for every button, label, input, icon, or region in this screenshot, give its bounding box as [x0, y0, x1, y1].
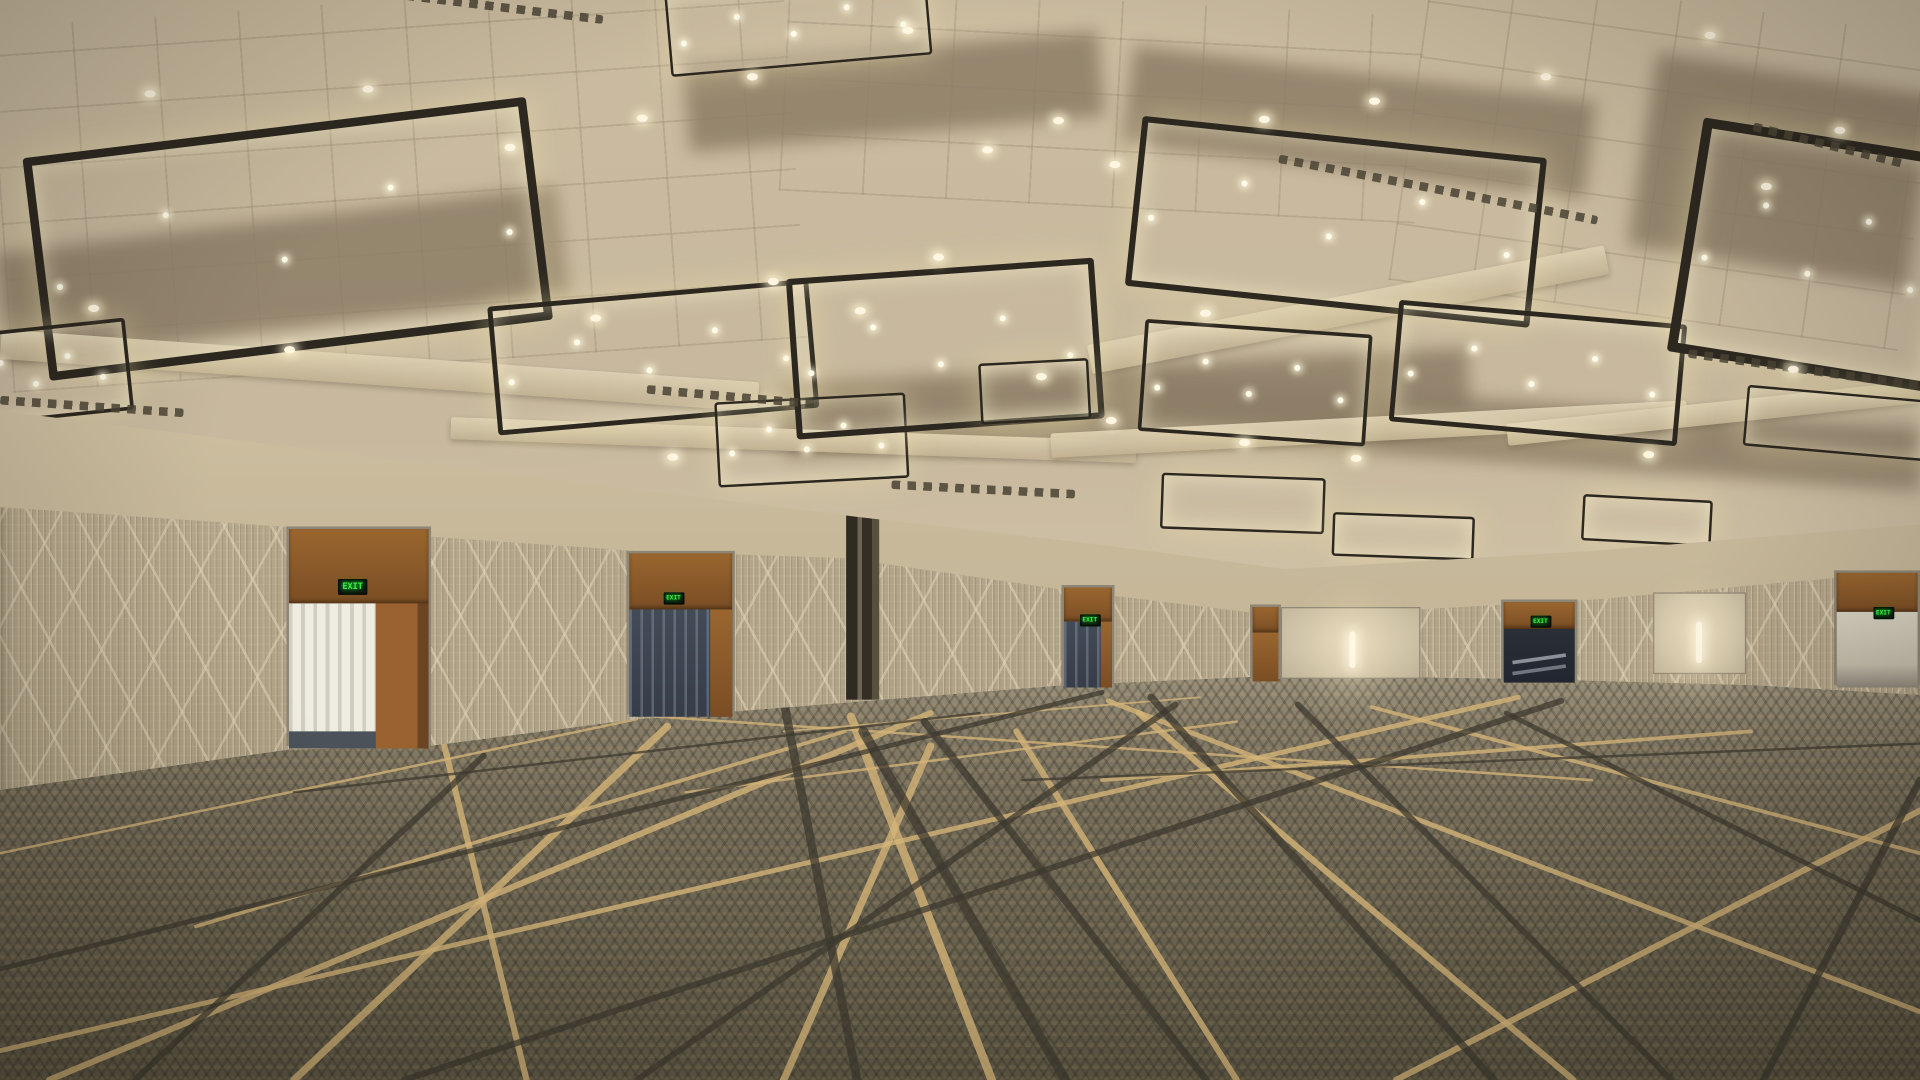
downlight: [504, 144, 515, 151]
fixture-bulb: [870, 324, 877, 331]
fixture-bulb: [1503, 252, 1510, 259]
fixture-bulb: [999, 315, 1006, 322]
light-fixture: [1389, 300, 1688, 447]
open-door-dim: [1837, 612, 1918, 688]
fixture-bulb: [281, 256, 288, 263]
escalator-handrail: [1512, 664, 1566, 675]
fixture-bulb: [1804, 271, 1811, 278]
fixture-bulb: [1202, 358, 1209, 365]
fixture-bulb: [56, 283, 63, 290]
fixture-bulb: [734, 14, 741, 21]
exit-sign-label: EXIT: [1876, 610, 1891, 616]
downlight: [362, 85, 373, 92]
exit-sign-label: EXIT: [1533, 619, 1548, 625]
downlight: [1200, 310, 1211, 317]
door-header: [1253, 607, 1279, 633]
downlight: [1109, 161, 1120, 168]
downlight: [1704, 32, 1715, 39]
downlight: [1036, 373, 1047, 380]
doorway: [627, 551, 735, 714]
fixture-bulb: [711, 328, 718, 335]
vent-strip: [891, 480, 1075, 498]
fixture-bulb: [387, 184, 394, 191]
fixture-bulb: [808, 370, 815, 377]
escalator-handrail: [1512, 653, 1566, 664]
airwall-column: [846, 500, 879, 700]
door-threshold: [289, 731, 376, 748]
fixture-bulb: [64, 353, 71, 360]
doorway: [1062, 585, 1115, 685]
light-fixture: [1160, 473, 1326, 535]
wall-sconce: [1696, 622, 1702, 663]
escalator-opening: [1504, 629, 1575, 683]
exit-sign: EXIT: [338, 578, 367, 594]
fixture-bulb: [33, 380, 40, 387]
downlight: [747, 73, 758, 80]
exit-sign: EXIT: [1873, 607, 1894, 619]
doorway: [1834, 570, 1920, 685]
wall-sconce: [1349, 631, 1355, 668]
fixture-bulb: [843, 4, 850, 11]
door-curtain: [289, 603, 376, 748]
downlight: [88, 305, 99, 312]
doorway: [1250, 605, 1281, 679]
fixture-bulb: [1419, 199, 1426, 206]
exit-sign-label: EXIT: [666, 595, 681, 601]
fixture-bulb: [1148, 215, 1155, 222]
door-jamb: [1101, 622, 1112, 688]
downlight: [1239, 439, 1250, 446]
downlight: [982, 146, 993, 153]
downlight: [667, 453, 678, 460]
downlight: [1834, 127, 1845, 134]
light-fixture: [978, 358, 1091, 425]
light-fixture: [1332, 512, 1475, 561]
fixture-bulb: [1337, 397, 1344, 404]
downlight: [144, 90, 155, 97]
fixture-bulb: [1246, 391, 1253, 398]
doorway: [287, 527, 431, 746]
fixture-bulb: [100, 373, 107, 380]
light-fixture: [1581, 494, 1713, 547]
downlight: [1540, 73, 1551, 80]
downlight: [1761, 183, 1772, 190]
exit-sign: EXIT: [663, 592, 684, 604]
ballroom-rendering: EXITEXITEXITEXITEXIT: [0, 0, 1920, 1080]
downlight: [1106, 417, 1117, 424]
fixture-bulb: [790, 31, 797, 38]
fixture-bulb: [1762, 202, 1769, 209]
fixture-bulb: [1067, 352, 1074, 359]
downlight: [1053, 117, 1064, 124]
exit-sign: EXIT: [1530, 616, 1551, 628]
wood-door: [1253, 633, 1279, 682]
downlight: [1351, 455, 1362, 462]
fixture-bulb: [0, 360, 3, 367]
fixture-bulb: [1865, 219, 1872, 226]
exit-sign: EXIT: [1079, 614, 1100, 626]
fixture-bulb: [1591, 355, 1598, 362]
downlight: [855, 307, 866, 314]
fixture-bulb: [681, 40, 688, 47]
fixture-bulb: [783, 355, 790, 362]
fixture-bulb: [765, 426, 771, 432]
fixture-bulb: [729, 450, 735, 456]
downlight: [1369, 98, 1380, 105]
fixture-bulb: [938, 361, 945, 368]
downlight: [902, 27, 913, 34]
fixture-bulb: [1154, 384, 1161, 391]
door-jamb: [710, 609, 733, 716]
fixture-bulb: [804, 447, 810, 453]
fixture-bulb: [1907, 287, 1914, 294]
fixture-bulb: [162, 212, 169, 219]
downlight: [284, 346, 295, 353]
downlight: [1788, 366, 1799, 373]
downlight: [1259, 116, 1270, 123]
fixture-bulb: [508, 379, 515, 386]
fixture-bulb: [1293, 364, 1300, 371]
downlight: [637, 115, 648, 122]
exit-sign-label: EXIT: [1082, 617, 1097, 623]
fixture-bulb: [878, 443, 884, 449]
fixture-bulb: [1701, 254, 1708, 261]
exit-sign-label: EXIT: [342, 582, 363, 591]
downlight: [933, 254, 944, 261]
downlight: [1643, 451, 1654, 458]
fixture-bulb: [1325, 234, 1332, 241]
fixture-bulb: [574, 340, 581, 347]
fixture-bulb: [1649, 392, 1656, 399]
fixture-bulb: [646, 367, 653, 374]
scene: EXITEXITEXITEXITEXIT: [0, 0, 1920, 1080]
doorway: [1501, 600, 1577, 680]
downlight: [768, 278, 779, 285]
light-fixture: [1138, 319, 1373, 447]
fixture-bulb: [1528, 381, 1535, 388]
fixture-bulb: [1241, 180, 1248, 187]
fixture-bulb: [506, 228, 513, 235]
fixture-bulb: [1407, 371, 1414, 378]
fixture-bulb: [1470, 345, 1477, 352]
downlight: [590, 314, 601, 321]
